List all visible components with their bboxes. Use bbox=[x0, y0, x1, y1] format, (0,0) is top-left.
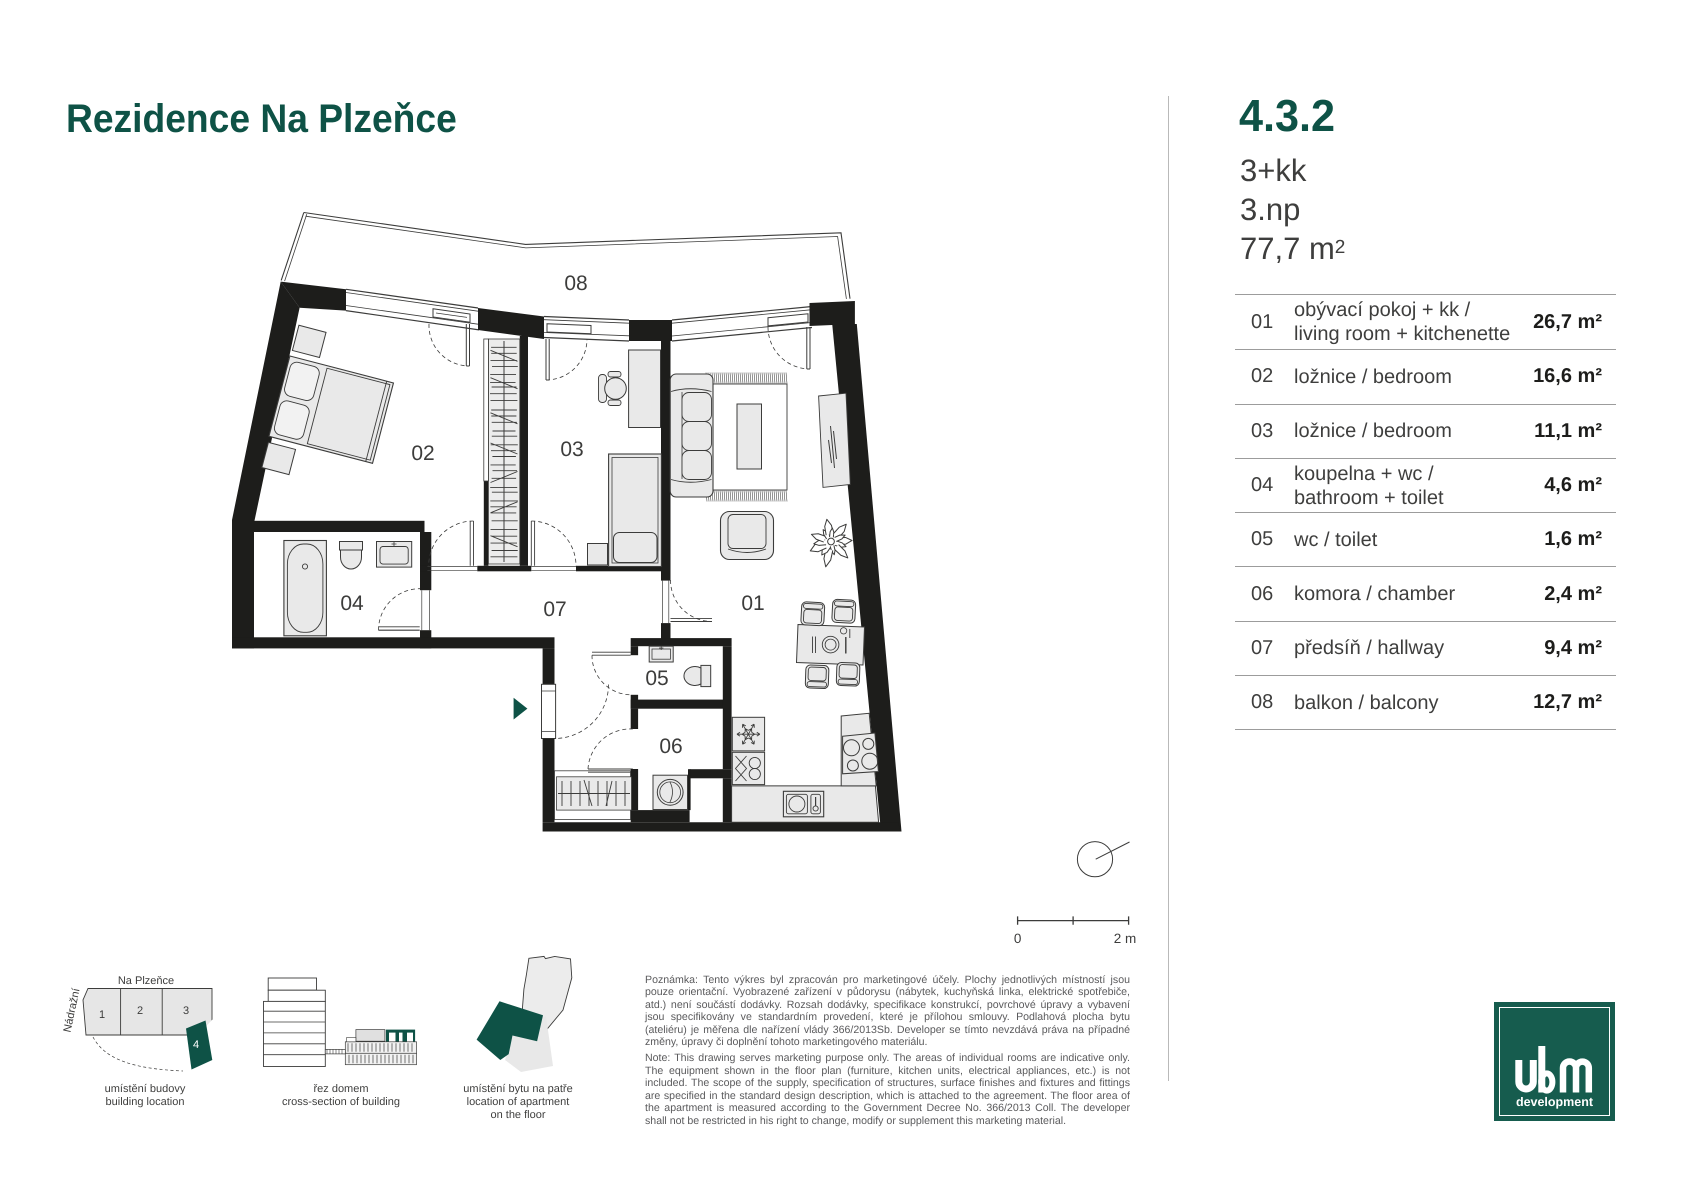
svg-text:Na Plzeňce: Na Plzeňce bbox=[118, 975, 174, 987]
svg-text:08: 08 bbox=[564, 272, 587, 295]
svg-text:07: 07 bbox=[543, 598, 566, 621]
svg-text:06: 06 bbox=[659, 735, 682, 758]
svg-text:3: 3 bbox=[183, 1005, 189, 1017]
svg-text:2: 2 bbox=[137, 1005, 143, 1017]
svg-text:05: 05 bbox=[645, 667, 668, 690]
svg-text:4: 4 bbox=[193, 1039, 199, 1051]
svg-text:03: 03 bbox=[560, 438, 583, 461]
svg-text:02: 02 bbox=[411, 442, 434, 465]
svg-text:Nádražní: Nádražní bbox=[62, 986, 83, 1033]
svg-text:0: 0 bbox=[1014, 931, 1022, 946]
svg-text:2 m: 2 m bbox=[1114, 931, 1137, 946]
svg-text:1: 1 bbox=[99, 1009, 105, 1021]
svg-text:01: 01 bbox=[741, 592, 764, 615]
svg-text:04: 04 bbox=[340, 592, 364, 615]
